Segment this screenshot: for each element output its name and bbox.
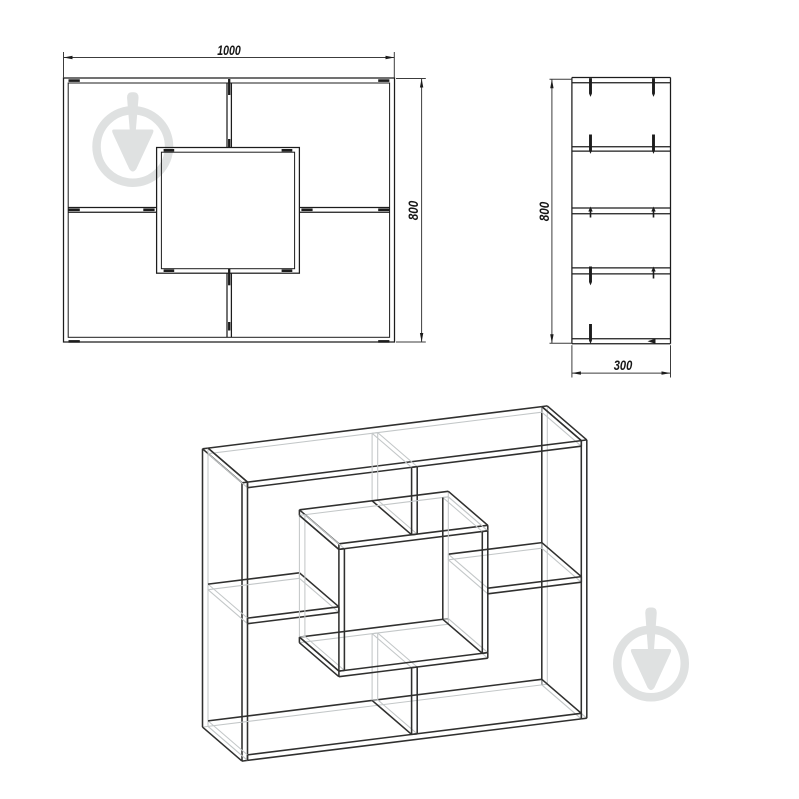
svg-text:1000: 1000	[217, 43, 241, 58]
svg-text:800: 800	[406, 200, 421, 220]
svg-text:300: 300	[614, 358, 633, 373]
svg-text:800: 800	[537, 201, 552, 221]
